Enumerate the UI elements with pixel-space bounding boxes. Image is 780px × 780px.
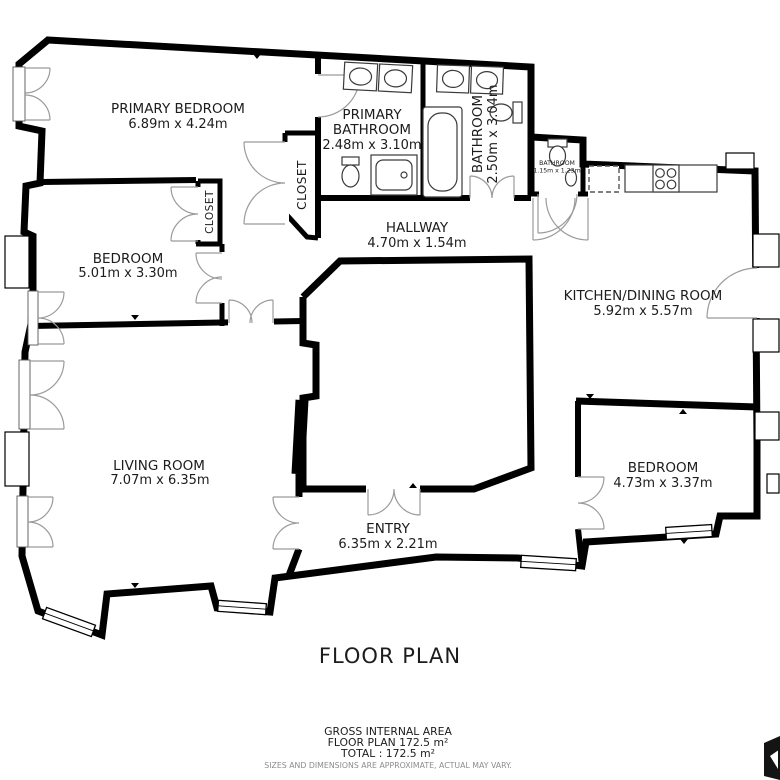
label-closet-left: CLOSET xyxy=(204,190,216,234)
label-primary-bathroom-1: PRIMARY xyxy=(342,107,402,123)
recess-kitchen-e3 xyxy=(755,412,779,440)
door-arc-hall-kitchen xyxy=(533,198,588,240)
label-closet-right: CLOSET xyxy=(295,160,309,210)
stove-icon xyxy=(653,165,679,192)
label-bathroom: BATHROOM xyxy=(470,95,486,173)
dims-bedroom-right: 4.73m x 3.37m xyxy=(613,476,712,491)
wall-primary-bedroom-south xyxy=(42,180,196,182)
door-arc-closet-right xyxy=(244,142,285,224)
window-bedroom-s xyxy=(666,525,713,540)
wall-kitchen-south xyxy=(576,401,757,407)
dims-living-room: 7.07m x 6.35m xyxy=(110,473,209,488)
dims-entry: 6.35m x 2.21m xyxy=(338,537,437,552)
opening-bedroom-balcony xyxy=(28,291,38,345)
dims-bathroom: 2.50m x 3.04m xyxy=(486,84,501,183)
refrigerator-dashed-icon xyxy=(589,166,619,192)
logo-mark xyxy=(764,736,780,780)
label-small-bathroom: BATHROOM xyxy=(539,160,575,167)
toilet-icon xyxy=(342,157,359,187)
dims-hallway: 4.70m x 1.54m xyxy=(367,236,466,251)
door-arc-living-balcony-2 xyxy=(28,497,53,547)
opening-small-bath xyxy=(539,190,578,198)
opening-primary-bedroom-balcony xyxy=(13,67,25,121)
label-bedroom-left: BEDROOM xyxy=(93,251,163,267)
page-title: FLOOR PLAN xyxy=(319,644,461,668)
label-hallway: HALLWAY xyxy=(386,220,449,236)
label-primary-bathroom-2: BATHROOM xyxy=(333,122,411,138)
bathtub-icon xyxy=(423,107,462,197)
shower-icon xyxy=(371,155,417,195)
recess-living-west xyxy=(5,432,29,486)
summary-total-area: TOTAL : 172.5 m² xyxy=(340,747,435,760)
opening-primary-bath xyxy=(313,74,323,117)
dims-small-bathroom: 1.15m x 1.23m xyxy=(533,168,580,175)
recess-kitchen-e1 xyxy=(753,234,779,267)
floor-plan-canvas: PRIMARY BEDROOM 6.89m x 4.24m PRIMARY BA… xyxy=(0,0,780,780)
label-primary-bedroom: PRIMARY BEDROOM xyxy=(111,101,245,117)
opening-living-balcony-1 xyxy=(19,360,30,429)
recess-kitchen-e2 xyxy=(753,319,779,352)
opening-living-balcony-2 xyxy=(17,496,28,547)
window-living-sw xyxy=(43,607,96,636)
recess-kitchen-ne xyxy=(726,153,754,169)
wall-core-east xyxy=(303,259,531,489)
dims-kitchen-dining: 5.92m x 5.57m xyxy=(593,304,692,319)
summary-disclaimer: SIZES AND DIMENSIONS ARE APPROXIMATE, AC… xyxy=(264,761,511,770)
recess-bedroom-e xyxy=(767,474,779,493)
label-living-room: LIVING ROOM xyxy=(113,458,205,474)
sink-icon xyxy=(343,62,412,93)
dims-primary-bathroom: 2.48m x 3.10m xyxy=(322,138,421,153)
window-entry-s xyxy=(521,555,577,570)
door-arc-bedroom-balcony xyxy=(38,292,64,344)
wall-core-west xyxy=(303,297,368,489)
window-living-s xyxy=(218,600,267,614)
label-bedroom-right: BEDROOM xyxy=(628,460,698,476)
label-entry: ENTRY xyxy=(366,521,410,537)
label-kitchen-dining: KITCHEN/DINING ROOM xyxy=(564,288,723,304)
wall-core-thick xyxy=(298,400,302,474)
dims-bedroom-left: 5.01m x 3.30m xyxy=(78,266,177,281)
dims-primary-bedroom: 6.89m x 4.24m xyxy=(128,117,227,132)
recess-bedroom-west xyxy=(5,236,29,288)
door-arc-living-balcony-1 xyxy=(30,361,64,429)
opening-kitchen-terrace xyxy=(752,268,762,318)
door-arc-primary-balcony xyxy=(25,68,50,120)
